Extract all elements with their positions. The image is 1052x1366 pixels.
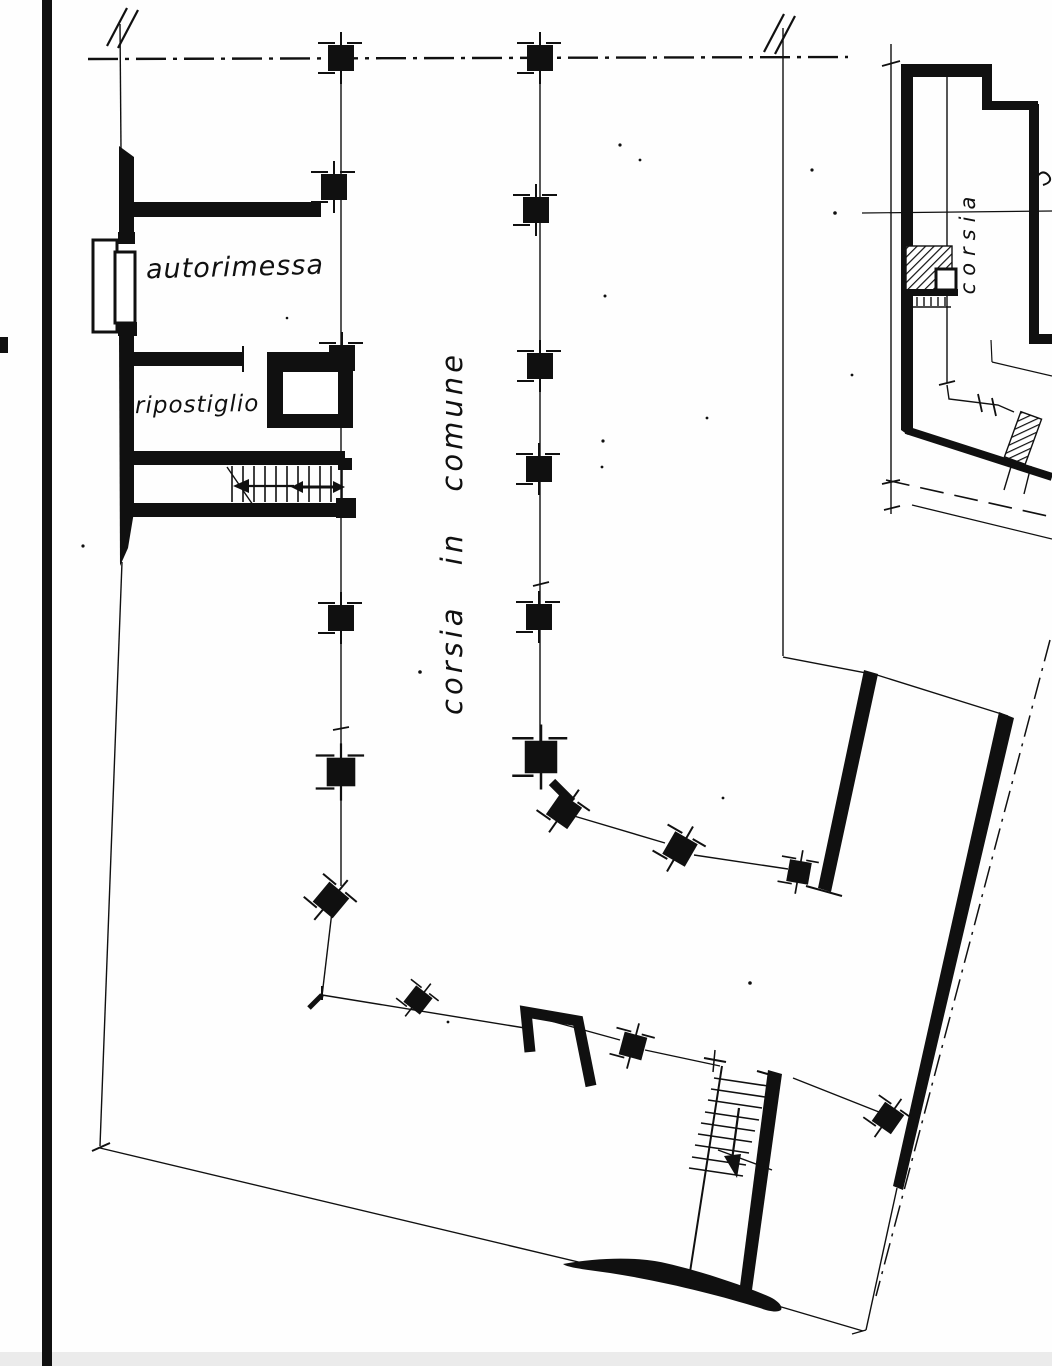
column-marker bbox=[513, 184, 557, 236]
column-marker-rotated bbox=[391, 972, 444, 1026]
street-axis-dashdot bbox=[876, 640, 1050, 1296]
column-marker-rotated bbox=[607, 1018, 657, 1073]
wall-left-lower bbox=[119, 334, 134, 566]
plan-drawing bbox=[0, 0, 1052, 1366]
room-label-autorimessa: autorimessa bbox=[146, 250, 325, 286]
wall-ripostiglio-top bbox=[133, 352, 243, 366]
room-label-ripostiglio: ripostiglio bbox=[135, 391, 260, 419]
break-mark-left bbox=[107, 8, 138, 48]
scanned-floor-plan-page: autorimessa ripostiglio corsia in comune… bbox=[0, 0, 1052, 1366]
inset-street-edge bbox=[912, 505, 1052, 539]
ground-mass bbox=[563, 1259, 863, 1331]
garage-door-symbol bbox=[93, 240, 135, 332]
wall-left-upper bbox=[119, 146, 134, 236]
column-marker bbox=[516, 443, 560, 495]
east-walls bbox=[783, 640, 1050, 1334]
wall-diagonal-boundary bbox=[893, 712, 1014, 1190]
wall-diagonal-inner bbox=[818, 670, 878, 892]
scan-blob bbox=[0, 337, 8, 353]
wall-stub-above-door bbox=[118, 232, 135, 244]
column-marker bbox=[516, 591, 560, 643]
inset-hatched-block bbox=[906, 246, 958, 296]
stair-direction-arrow bbox=[233, 479, 345, 493]
inset-stair-tilted bbox=[1004, 412, 1041, 465]
boundary-lower-right bbox=[866, 1188, 897, 1330]
platform-lower-edge bbox=[309, 972, 720, 1086]
column-marker bbox=[517, 340, 561, 392]
page-border-line bbox=[42, 0, 52, 1366]
inset-wall-right-stub bbox=[1029, 334, 1052, 344]
south-boundary-chain bbox=[530, 777, 820, 897]
inset-street-dashed bbox=[886, 480, 1052, 517]
column-marker-rotated bbox=[776, 847, 821, 897]
break-mark-right bbox=[764, 14, 795, 54]
stair-lower bbox=[689, 1050, 782, 1290]
column-marker-rotated bbox=[647, 815, 711, 882]
stair-down-arrow bbox=[724, 1108, 741, 1178]
stair-wall-right bbox=[740, 1070, 782, 1290]
column-marker bbox=[316, 743, 364, 800]
west-boundary bbox=[92, 562, 612, 1270]
building-autorimessa bbox=[93, 146, 356, 566]
wall-autorimessa-top bbox=[133, 202, 321, 217]
lane-label-corsia-in-comune: corsia in comune bbox=[434, 263, 470, 803]
wall-stair-bottom bbox=[133, 503, 345, 517]
column-marker-large bbox=[512, 725, 567, 790]
column-marker bbox=[318, 592, 362, 644]
boundary-diagonal bbox=[100, 1148, 612, 1270]
inset-lane-label-corsia: corsia bbox=[955, 147, 981, 337]
inset-wall-right bbox=[1029, 104, 1039, 340]
shaft-square bbox=[267, 352, 353, 428]
wall-ripostiglio-bottom bbox=[133, 451, 345, 465]
boundary-line-top-left bbox=[120, 24, 121, 150]
column-grid-b bbox=[512, 32, 567, 790]
